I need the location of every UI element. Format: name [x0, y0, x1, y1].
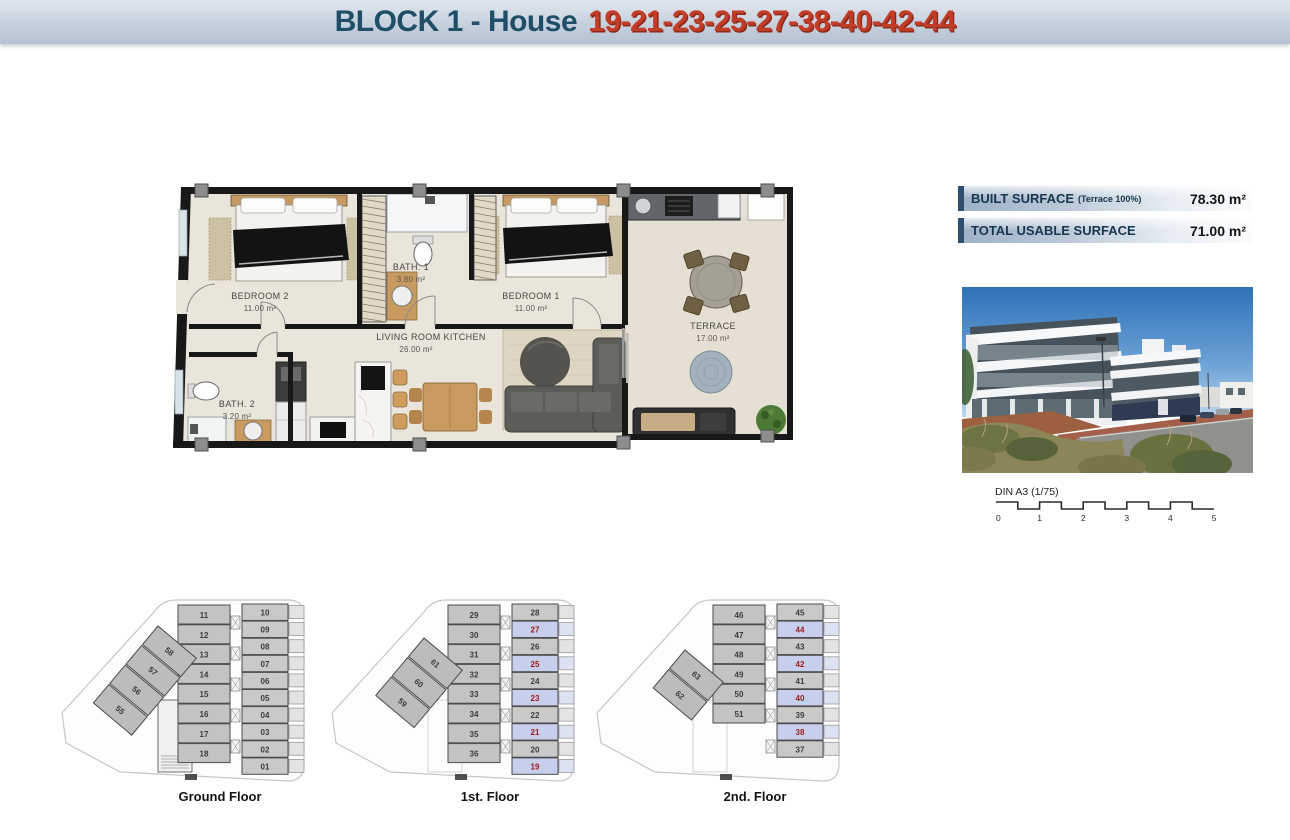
unit-number: 44: [796, 626, 805, 635]
bedroom2-area: 11.00 m²: [244, 304, 277, 313]
bath1-area: 3.80 m²: [397, 275, 426, 284]
unit-number: 34: [470, 710, 479, 719]
second-floor-plan: 4647484950514544434241403938376362: [593, 596, 851, 786]
balcony-cell: [824, 674, 839, 687]
unit-number: 33: [470, 690, 479, 699]
dining-chair: [479, 388, 492, 402]
bar-stool: [393, 370, 407, 385]
bedroom1-label: BEDROOM 1: [502, 291, 560, 301]
dining-chair: [479, 410, 492, 424]
bar-stool: [393, 392, 407, 407]
unit-number: 37: [796, 745, 805, 754]
second-floor-svg: 4647484950514544434241403938376362: [593, 596, 851, 786]
balcony-cell: [559, 623, 574, 636]
balcony-cell: [559, 640, 574, 653]
balcony-cell: [559, 606, 574, 619]
apartment-floorplan: BEDROOM 2 11.00 m² BATH. 1 3.80 m² BEDRO…: [173, 180, 805, 472]
unit-number: 22: [531, 711, 540, 720]
balcony-cell: [559, 725, 574, 738]
unit-number: 47: [735, 631, 744, 640]
unit-number: 35: [470, 730, 479, 739]
tv: [320, 422, 346, 438]
terrace-floor: [625, 192, 791, 438]
pillow: [293, 198, 337, 213]
scale-steps: [996, 502, 1214, 509]
unit-number: 48: [735, 651, 744, 660]
pillow: [241, 198, 285, 213]
balcony-cell: [824, 657, 839, 670]
bath2-label: BATH. 2: [219, 399, 255, 409]
balcony-cell: [559, 691, 574, 704]
unit-number: 29: [470, 611, 479, 620]
unit-number: 49: [735, 670, 744, 679]
wall-opening: [176, 280, 188, 314]
unit-number: 06: [261, 677, 270, 686]
ground-floor-plan: 1112131415161718100908070605040302015857…: [58, 596, 316, 786]
living-area: 26.00 m²: [399, 345, 432, 354]
unit-number: 39: [796, 711, 805, 720]
unit-number: 30: [470, 631, 479, 640]
surface-table: BUILT SURFACE (Terrace 100%) 78.30 m² TO…: [958, 186, 1252, 250]
unit-number: 01: [261, 762, 270, 771]
usable-surface-row: TOTAL USABLE SURFACE 71.00 m²: [958, 218, 1252, 243]
balcony-cell: [824, 725, 839, 738]
outdoor-sink-icon: [635, 198, 651, 214]
terrace-area: 17.00 m²: [696, 334, 729, 343]
unit-number: 28: [531, 609, 540, 618]
scale-tick: 4: [1168, 513, 1173, 523]
unit-number: 24: [531, 677, 540, 686]
balcony-cell: [824, 691, 839, 704]
cooktop: [361, 366, 385, 390]
wardrobe: [474, 196, 496, 280]
unit-number: 11: [200, 611, 209, 620]
building-photo-svg: [962, 287, 1253, 473]
round-rug: [520, 337, 570, 387]
unit-number: 45: [796, 609, 805, 618]
unit-number: 05: [261, 694, 270, 703]
balcony-cell: [559, 708, 574, 721]
apartment-floorplan-svg: BEDROOM 2 11.00 m² BATH. 1 3.80 m² BEDRO…: [173, 180, 805, 472]
sink-icon: [392, 286, 412, 306]
unit-number: 10: [261, 609, 270, 618]
unit-number: 12: [200, 631, 209, 640]
unit-number: 07: [261, 660, 270, 669]
scale-bar: DIN A3 (1/75) 012345: [995, 486, 1219, 530]
unit-number: 25: [531, 660, 540, 669]
first-floor-svg: 2930313233343536282726252423222120196160…: [328, 596, 586, 786]
balcony-cell: [824, 623, 839, 636]
living-label: LIVING ROOM KITCHEN: [376, 332, 486, 342]
unit-number: 04: [261, 711, 270, 720]
terrace-label: TERRACE: [690, 321, 736, 331]
balcony-cell: [289, 640, 304, 653]
bath1-label: BATH. 1: [393, 262, 429, 272]
usable-surface-value: 71.00 m²: [1190, 223, 1252, 239]
unit-number: 18: [200, 750, 209, 759]
unit-number: 17: [200, 730, 209, 739]
terrace-rug: [690, 351, 732, 393]
scale-tick: 3: [1124, 513, 1129, 523]
toilet-icon: [193, 382, 219, 400]
scale-tick: 1: [1037, 513, 1042, 523]
scale-tick: 0: [996, 513, 1001, 523]
built-surface-value: 78.30 m²: [1190, 191, 1252, 207]
stair-block: [455, 774, 467, 780]
unit-number: 09: [261, 626, 270, 635]
street-lamp-head: [1096, 337, 1106, 341]
unit-number: 23: [531, 694, 540, 703]
balcony-cell: [289, 623, 304, 636]
balcony-cell: [824, 640, 839, 653]
built-surface-label: BUILT SURFACE: [964, 191, 1074, 206]
unit-number: 26: [531, 643, 540, 652]
scale-bar-svg: 012345: [995, 499, 1219, 525]
first-floor-label: 1st. Floor: [328, 789, 586, 804]
window: [175, 370, 183, 414]
stair-block: [185, 774, 197, 780]
unit-number: 13: [200, 651, 209, 660]
bedside-rug: [209, 218, 231, 280]
unit-number: 41: [796, 677, 805, 686]
usable-surface-label: TOTAL USABLE SURFACE: [964, 223, 1136, 238]
second-floor-label: 2nd. Floor: [593, 789, 851, 804]
header-title: BLOCK 1 - House: [335, 5, 578, 39]
unit-number: 46: [735, 611, 744, 620]
scale-tick: 2: [1081, 513, 1086, 523]
balcony-cell: [289, 691, 304, 704]
built-surface-row: BUILT SURFACE (Terrace 100%) 78.30 m²: [958, 186, 1252, 211]
unit-number: 51: [735, 710, 744, 719]
unit-number: 42: [796, 660, 805, 669]
unit-number: 15: [200, 690, 209, 699]
ground-floor-label: Ground Floor: [58, 789, 316, 804]
dining-chair: [409, 410, 422, 424]
scale-tick: 5: [1212, 513, 1217, 523]
bedroom2-label: BEDROOM 2: [231, 291, 289, 301]
living-room-furniture: [503, 330, 625, 432]
unit-number: 32: [470, 670, 479, 679]
bedroom1-area: 11.00 m²: [515, 304, 548, 313]
unit-number: 50: [735, 690, 744, 699]
unit-number: 36: [470, 750, 479, 759]
unit-number: 08: [261, 643, 270, 652]
building-photo: [962, 287, 1253, 473]
balcony-cell: [289, 742, 304, 755]
balcony-cell: [289, 708, 304, 721]
unit-number: 27: [531, 626, 540, 635]
balcony-cell: [559, 674, 574, 687]
balcony-cell: [289, 759, 304, 772]
balcony-cell: [559, 742, 574, 755]
scale-bar-label: DIN A3 (1/75): [995, 486, 1219, 498]
main-building: [966, 317, 1126, 425]
unit-number: 31: [470, 651, 479, 660]
header-unit-numbers: 19-21-23-25-27-38-40-42-44: [588, 5, 955, 39]
balcony-cell: [824, 742, 839, 755]
header-bar: BLOCK 1 - House 19-21-23-25-27-38-40-42-…: [0, 0, 1290, 44]
sink-icon: [244, 422, 262, 440]
shower-head-icon: [190, 424, 198, 434]
balcony-cell: [824, 708, 839, 721]
ground-floor-svg: 1112131415161718100908070605040302015857…: [58, 596, 316, 786]
unit-number: 43: [796, 643, 805, 652]
balcony-cell: [289, 725, 304, 738]
unit-number: 14: [200, 670, 209, 679]
balcony-cell: [824, 606, 839, 619]
bath2-area: 3.20 m²: [223, 412, 252, 421]
unit-number: 19: [531, 762, 540, 771]
balcony-cell: [559, 759, 574, 772]
pillow: [557, 198, 597, 213]
unit-number: 20: [531, 745, 540, 754]
first-floor-plan: 2930313233343536282726252423222120196160…: [328, 596, 586, 786]
unit-number: 03: [261, 728, 270, 737]
balcony-cell: [289, 657, 304, 670]
dining-chair: [409, 388, 422, 402]
balcony-cell: [289, 674, 304, 687]
unit-number: 40: [796, 694, 805, 703]
pillow: [511, 198, 551, 213]
bar-stool: [393, 414, 407, 429]
balcony-cell: [289, 606, 304, 619]
window: [179, 210, 187, 256]
balcony-cell: [559, 657, 574, 670]
unit-number: 38: [796, 728, 805, 737]
unit-number: 16: [200, 710, 209, 719]
unit-number: 02: [261, 745, 270, 754]
built-surface-note: (Terrace 100%): [1078, 194, 1141, 204]
unit-number: 21: [531, 728, 540, 737]
stair-block: [720, 774, 732, 780]
